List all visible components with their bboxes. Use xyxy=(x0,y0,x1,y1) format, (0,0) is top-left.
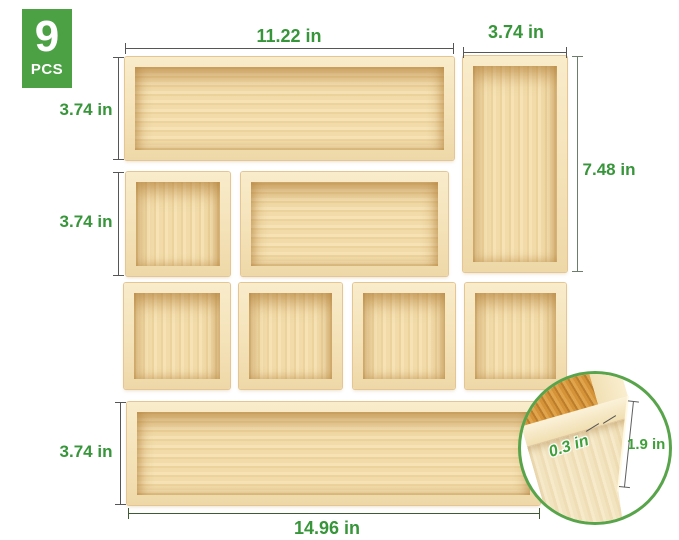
dim-line-top-width xyxy=(125,48,454,49)
badge-unit: PCS xyxy=(22,61,72,78)
dim-label-row1-height: 3.74 in xyxy=(56,101,116,120)
dim-label-row2-height: 3.74 in xyxy=(56,213,116,232)
bamboo-box-row3-3 xyxy=(353,283,455,389)
dim-label-tall-width: 3.74 in xyxy=(456,23,576,43)
pcs-count-badge: 9 PCS xyxy=(22,9,72,88)
box-cavity xyxy=(137,412,530,495)
dim-label-tall-height: 7.48 in xyxy=(578,161,640,180)
bamboo-box-row3-1 xyxy=(124,283,230,389)
bamboo-box-tall-right xyxy=(463,56,567,272)
dim-line-row1-height xyxy=(118,57,119,160)
dim-label-bottom-width: 14.96 in xyxy=(267,519,387,539)
bamboo-box-bottom-long xyxy=(127,402,540,505)
badge-count: 9 xyxy=(22,13,72,61)
box-cavity xyxy=(249,293,332,379)
box-cavity xyxy=(251,182,438,266)
dim-line-tall-width xyxy=(463,52,567,53)
box-cavity xyxy=(135,67,444,150)
product-dimension-diagram: 9 PCS 11.22 in 3.74 in 3.74 in 3.74 in 7… xyxy=(0,0,679,540)
box-cavity xyxy=(363,293,445,379)
dim-label-depth: 1.9 in xyxy=(627,436,671,453)
dim-line-bottom-height xyxy=(120,402,121,505)
dim-label-bottom-height: 3.74 in xyxy=(56,443,116,462)
corner-detail-inset: 0.3 in 1.9 in xyxy=(518,371,672,525)
bamboo-box-row3-2 xyxy=(239,283,342,389)
box-cavity xyxy=(473,66,557,262)
bamboo-box-top-long xyxy=(125,57,454,160)
dim-line-row2-height xyxy=(118,172,119,276)
bamboo-box-row2-square xyxy=(126,172,230,276)
box-cavity xyxy=(475,293,556,379)
dim-label-top-width: 11.22 in xyxy=(229,27,349,47)
dim-line-bottom-width xyxy=(128,513,540,514)
box-cavity xyxy=(136,182,220,266)
bamboo-box-row2-wide xyxy=(241,172,448,276)
box-cavity xyxy=(134,293,220,379)
